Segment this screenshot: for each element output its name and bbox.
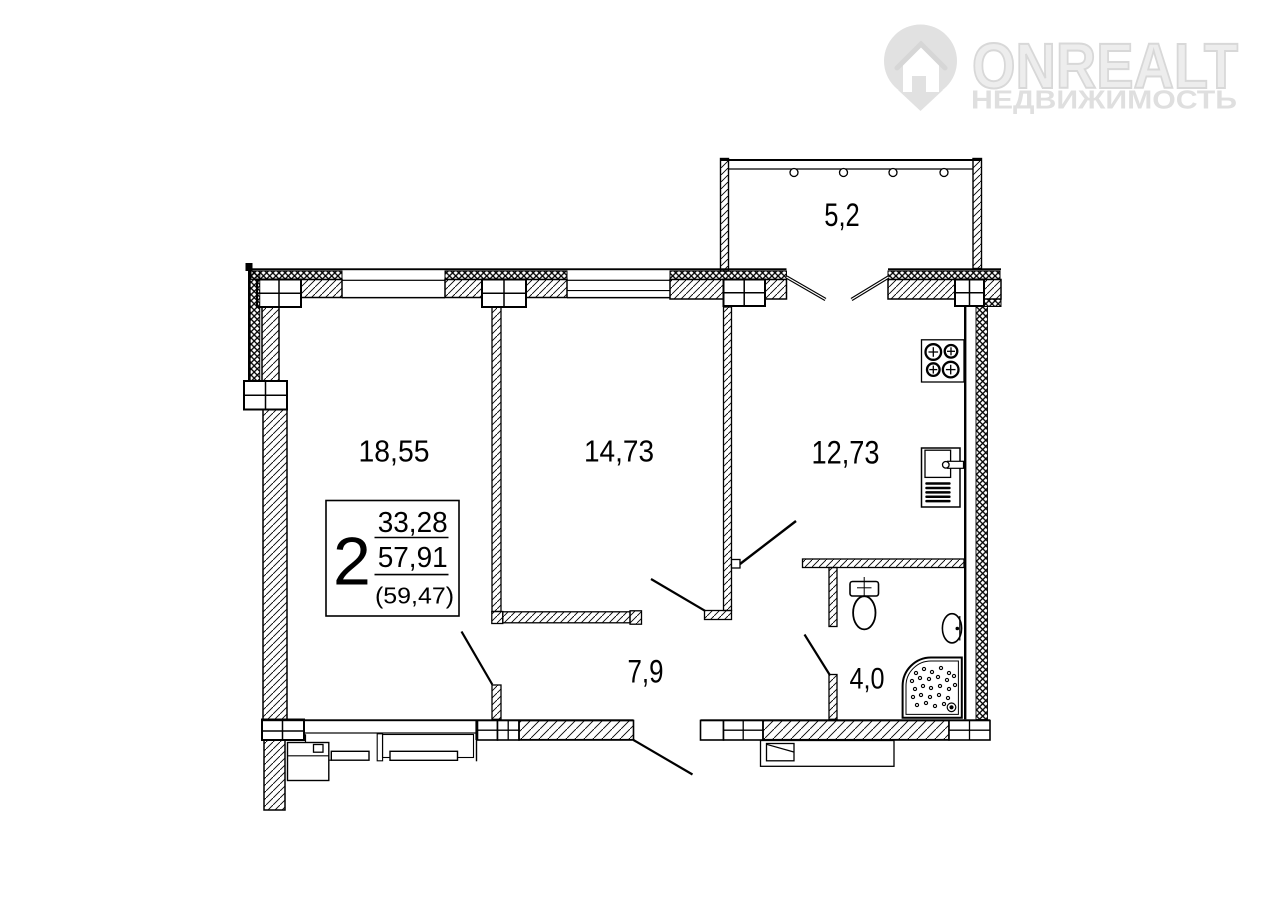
svg-text:14,73: 14,73 [584, 433, 654, 468]
svg-text:33,28: 33,28 [378, 507, 448, 539]
svg-text:4,0: 4,0 [850, 662, 885, 695]
svg-text:(59,47): (59,47) [375, 583, 454, 609]
svg-text:12,73: 12,73 [812, 434, 880, 470]
svg-text:2: 2 [333, 524, 371, 600]
svg-text:57,91: 57,91 [378, 542, 448, 574]
svg-text:18,55: 18,55 [359, 433, 430, 468]
svg-text:5,2: 5,2 [824, 197, 860, 233]
svg-text:НЕДВИЖИМОСТЬ: НЕДВИЖИМОСТЬ [971, 87, 1237, 115]
svg-text:7,9: 7,9 [628, 654, 664, 690]
